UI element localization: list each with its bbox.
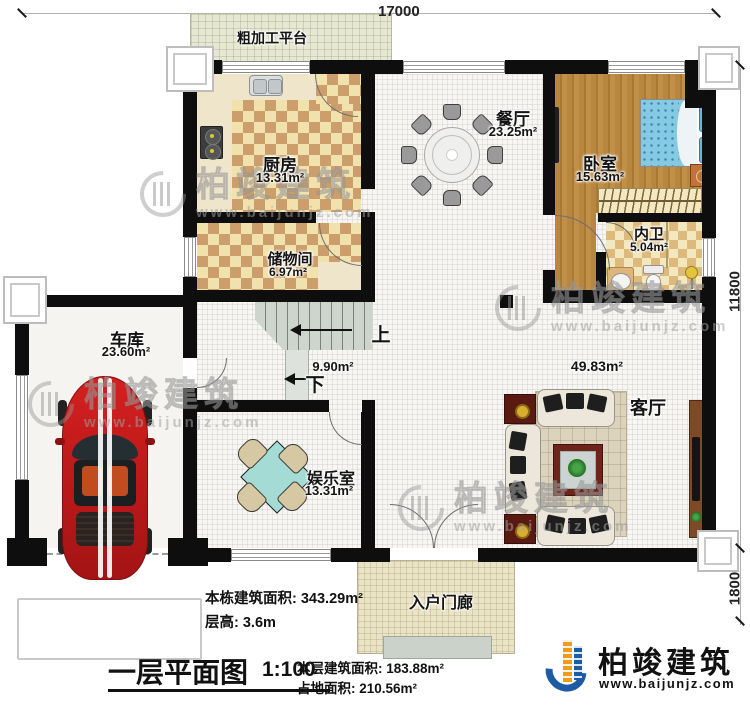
floor-height: 层高: 3.6m [205,611,276,632]
company-logo-icon [546,636,594,696]
sofa-pillow [510,456,526,474]
window [16,375,28,480]
plant [568,459,586,477]
window [222,61,310,73]
stair-up-arrowhead [290,324,301,336]
stove [200,126,223,159]
stair-down-arrowhead [284,373,295,385]
bedroom-left-wall [543,74,555,215]
storage-area: 6.97m² [269,265,307,279]
wall-segment [15,480,29,540]
window [703,238,715,277]
garage-area: 23.60m² [102,344,150,359]
stair-down-arrow [294,378,306,380]
bathroom-bottom-wall [543,290,716,303]
bathroom-area: 5.04m² [630,240,668,254]
dimension-porch-label: 1800 [727,559,744,619]
wall-segment [310,60,403,74]
dining-chair [487,146,503,164]
dining-chair [401,146,417,164]
window [184,237,196,277]
plant [691,512,701,522]
bed-blanket [677,100,699,166]
structural-column [500,295,513,308]
bath-lamp-stem [691,279,693,289]
wall-segment [331,548,390,562]
car-cockpit [74,460,136,506]
dining-chair [443,104,461,120]
sofa-pillow [566,393,584,409]
dimension-height-label: 11800 [727,262,744,322]
dining-table-center [446,149,458,161]
sports-car [60,376,150,580]
living-label: 客厅 [630,394,666,420]
porch-step [383,636,492,659]
porch-label: 入户门廊 [409,589,473,613]
wall-segment [702,277,716,560]
stair-up-arrow [300,329,352,331]
side-table [504,514,536,544]
corner-window [698,46,740,90]
kitchen-area: 13.31m² [256,170,304,185]
wall-segment [183,307,197,358]
dimension-line-right [740,68,741,625]
toilet-tank [643,265,664,274]
storage-corner [318,262,361,290]
corner-window [3,276,47,324]
wardrobe [598,188,702,214]
floor-area: 本层建筑面积: 183.88m² [297,657,444,677]
wardrobe-rod [599,200,701,202]
window [608,61,685,73]
dining-chair [443,190,461,206]
wall-segment [183,388,197,548]
car-stripe [107,378,112,578]
wall-segment [361,412,375,548]
tv [692,437,700,501]
car-stripe [98,378,103,578]
plan-title: 一层平面图 [108,651,248,691]
kitchen-storage-wall [197,212,316,223]
sofa-pillow [568,518,586,534]
sofa-pillow [545,514,566,533]
wall-segment [362,400,375,412]
living-area: 49.83m² [571,358,623,374]
building-total-area: 本栋建筑面积: 343.29m² [205,587,363,608]
dimension-width-label: 17000 [378,3,420,20]
platform-label: 粗加工平台 [237,28,307,48]
company-logo-url: www.baijunjz.com [599,676,735,691]
bath-lamp [685,266,698,279]
side-table [504,394,536,424]
car-mirror [145,438,155,445]
dining-area: 23.25m² [489,124,537,139]
bedroom-area: 15.63m² [576,169,624,184]
wall-segment [505,60,608,74]
entertainment-top-wall [183,400,329,412]
wall-segment [478,548,716,562]
stairs-down-label: 下 [305,370,324,397]
wall-segment [361,212,375,290]
window [403,61,505,73]
sofa-pillow [509,481,528,502]
corner-window [166,46,214,92]
floor-plan-page: 17000 11800 1800 [0,0,750,706]
car-mirror [55,438,65,445]
footprint-area: 占地面积: 210.56m² [297,677,417,697]
stairs-up-label: 上 [371,320,390,347]
sofa-pillow [509,431,528,452]
car-engine-cover [76,512,134,546]
wall-segment [361,60,375,189]
kitchen-sink [249,75,283,96]
wardrobe-bath-wall [598,213,702,222]
stairs-top-wall [197,290,375,302]
window [231,549,331,561]
entertainment-area: 13.31m² [305,483,353,498]
sofa-pillow [587,393,608,412]
garage-column [7,538,47,566]
